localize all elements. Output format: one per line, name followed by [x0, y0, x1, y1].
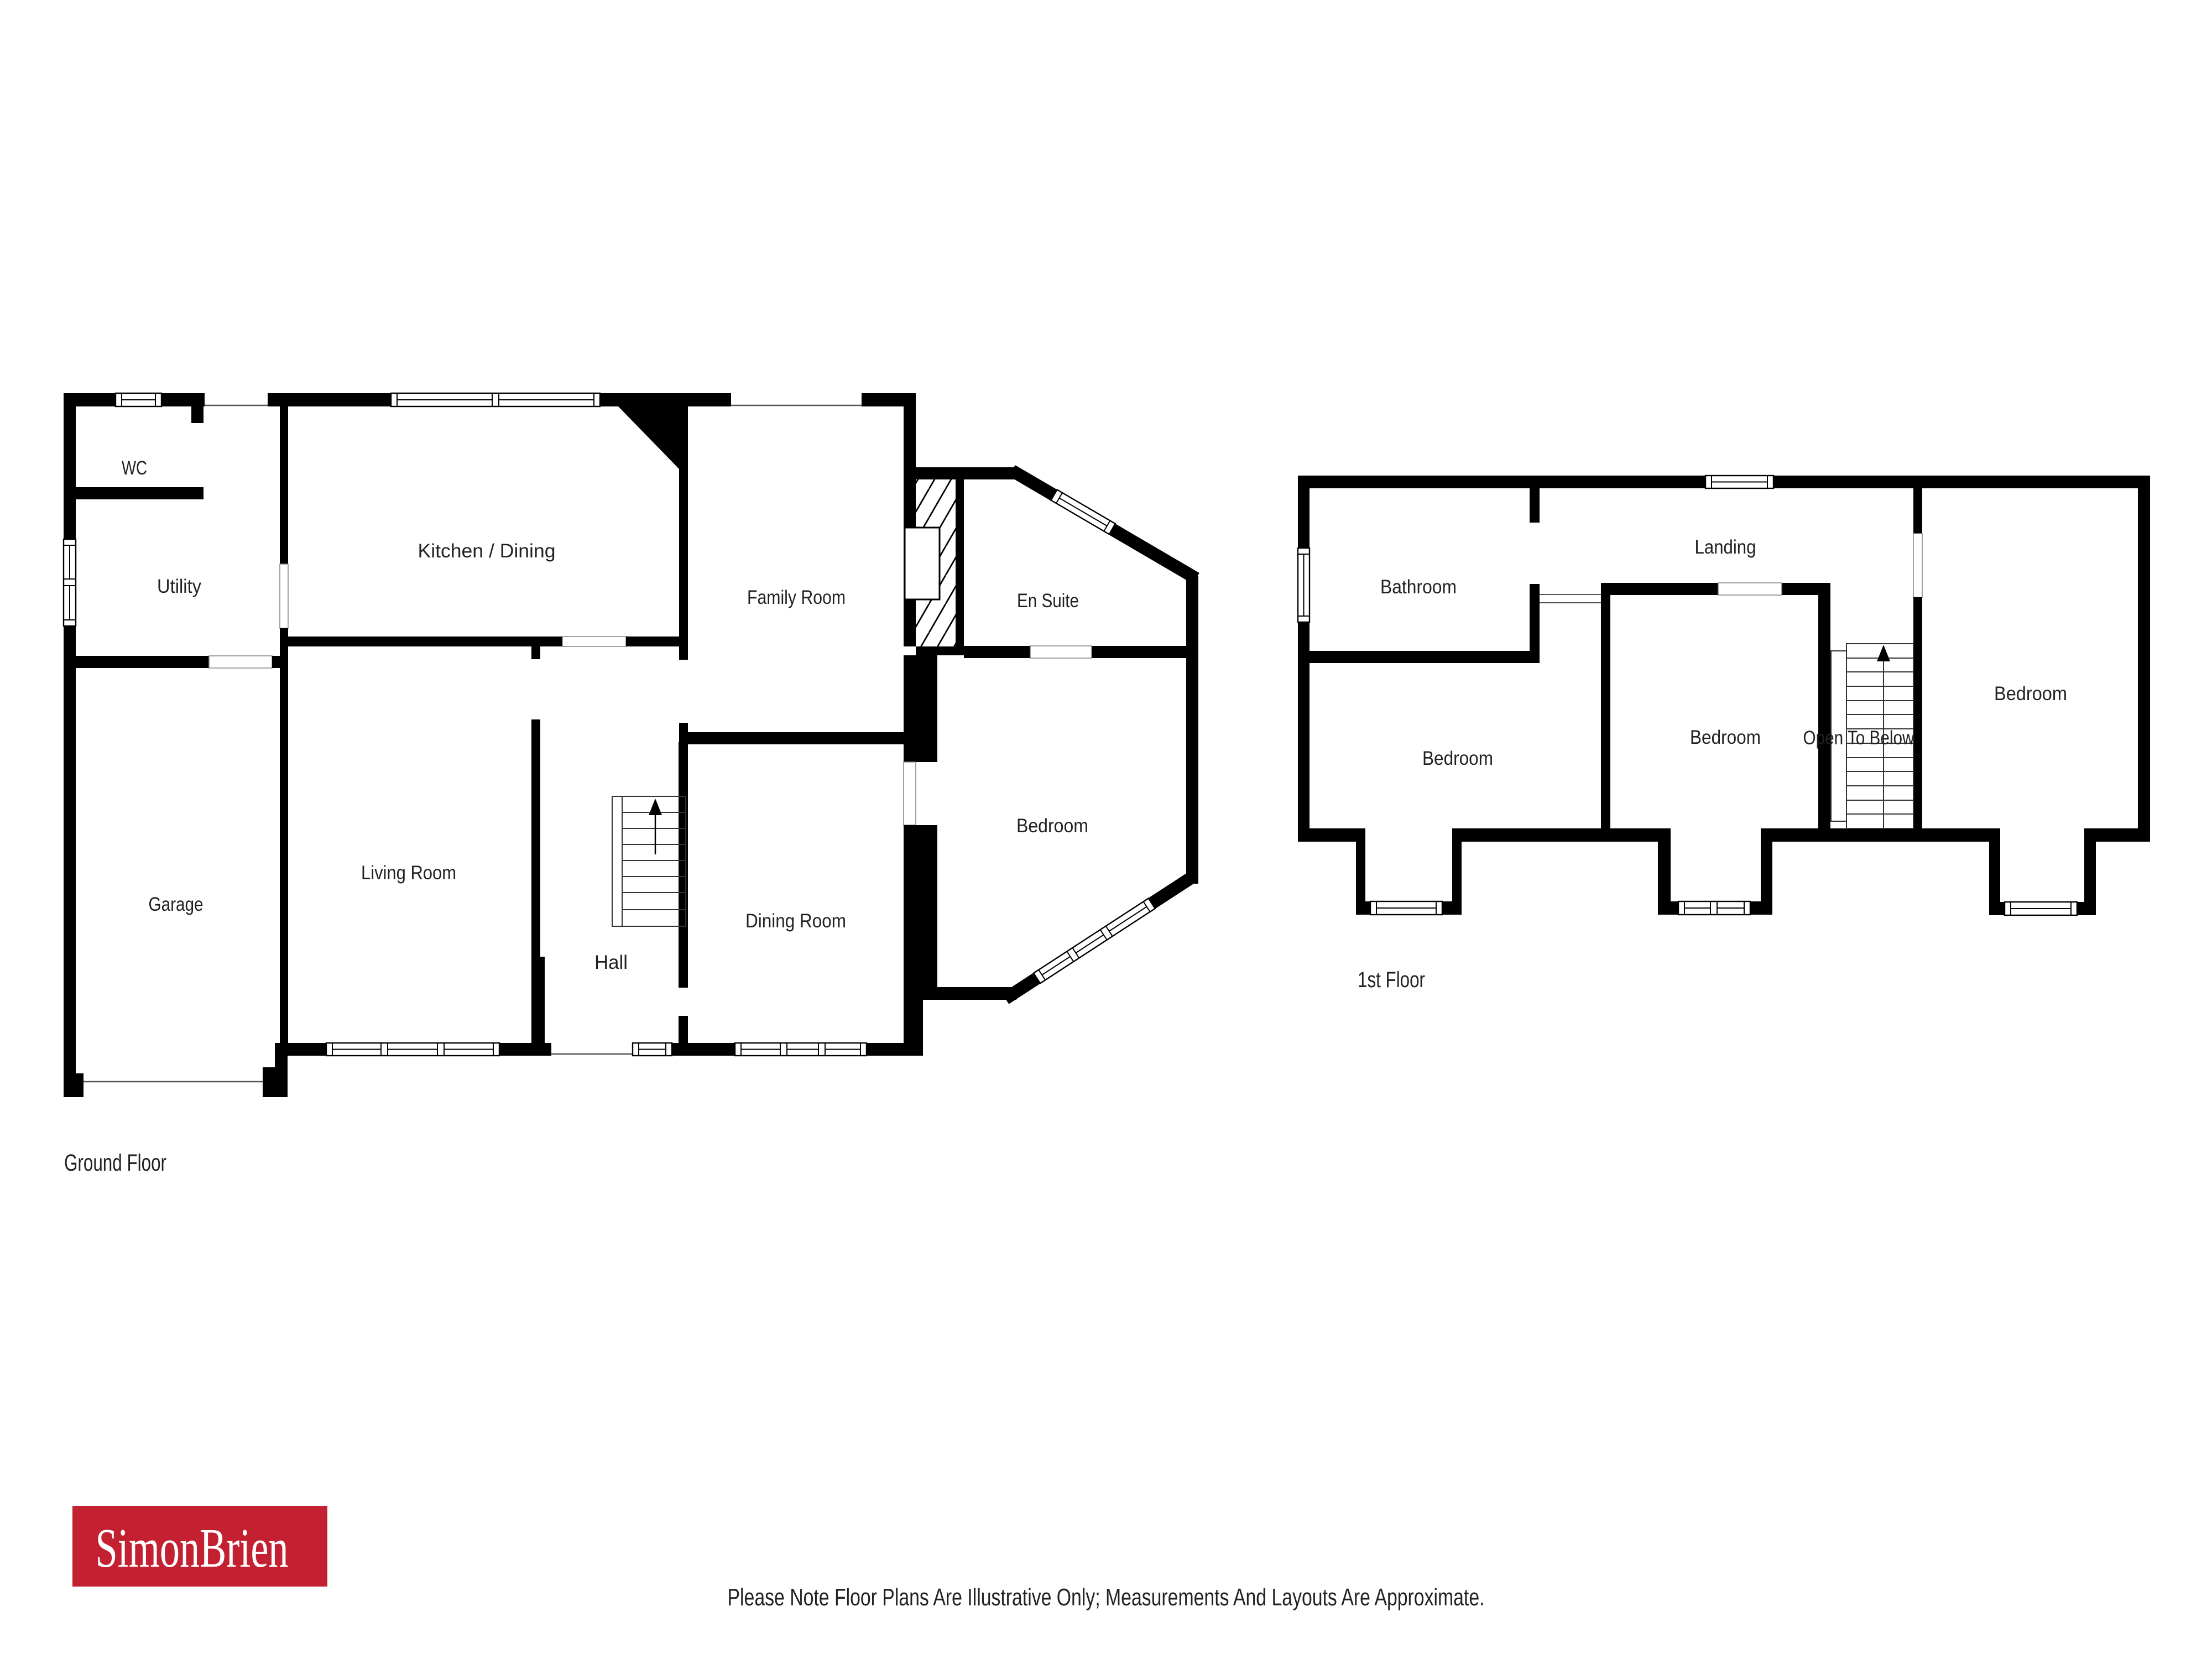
svg-text:Bedroom: Bedroom [1016, 815, 1088, 837]
svg-text:Ground Floor: Ground Floor [64, 1150, 166, 1176]
svg-text:Dining Room: Dining Room [745, 910, 846, 932]
svg-text:Bedroom: Bedroom [1994, 683, 2067, 705]
svg-text:Landing: Landing [1695, 536, 1756, 558]
svg-text:En Suite: En Suite [1017, 590, 1079, 612]
svg-text:Garage: Garage [149, 894, 204, 915]
svg-text:Living Room: Living Room [361, 862, 456, 884]
svg-text:Bedroom: Bedroom [1690, 727, 1761, 748]
svg-text:Please Note Floor Plans Are Il: Please Note Floor Plans Are Illustrative… [728, 1584, 1485, 1611]
svg-text:Bedroom: Bedroom [1422, 748, 1493, 769]
svg-text:Utility: Utility [157, 576, 201, 597]
svg-text:Bathroom: Bathroom [1380, 576, 1457, 598]
svg-text:WC: WC [122, 457, 147, 479]
svg-text:Kitchen / Dining: Kitchen / Dining [418, 540, 556, 562]
svg-text:1st Floor: 1st Floor [1358, 968, 1425, 992]
svg-text:Hall: Hall [594, 952, 628, 973]
svg-text:SimonBrien: SimonBrien [96, 1517, 289, 1579]
svg-text:Family Room: Family Room [747, 587, 846, 608]
svg-text:Open To Below: Open To Below [1803, 727, 1915, 749]
